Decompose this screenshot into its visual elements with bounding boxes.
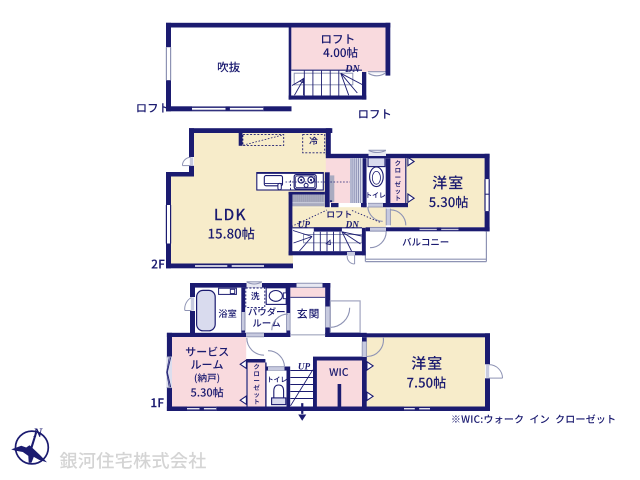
svg-text:N: N — [32, 426, 43, 440]
svg-text:DN: DN — [345, 220, 360, 230]
svg-text:UP: UP — [298, 362, 311, 372]
svg-text:UP: UP — [298, 220, 311, 230]
svg-text:DN: DN — [344, 64, 360, 75]
